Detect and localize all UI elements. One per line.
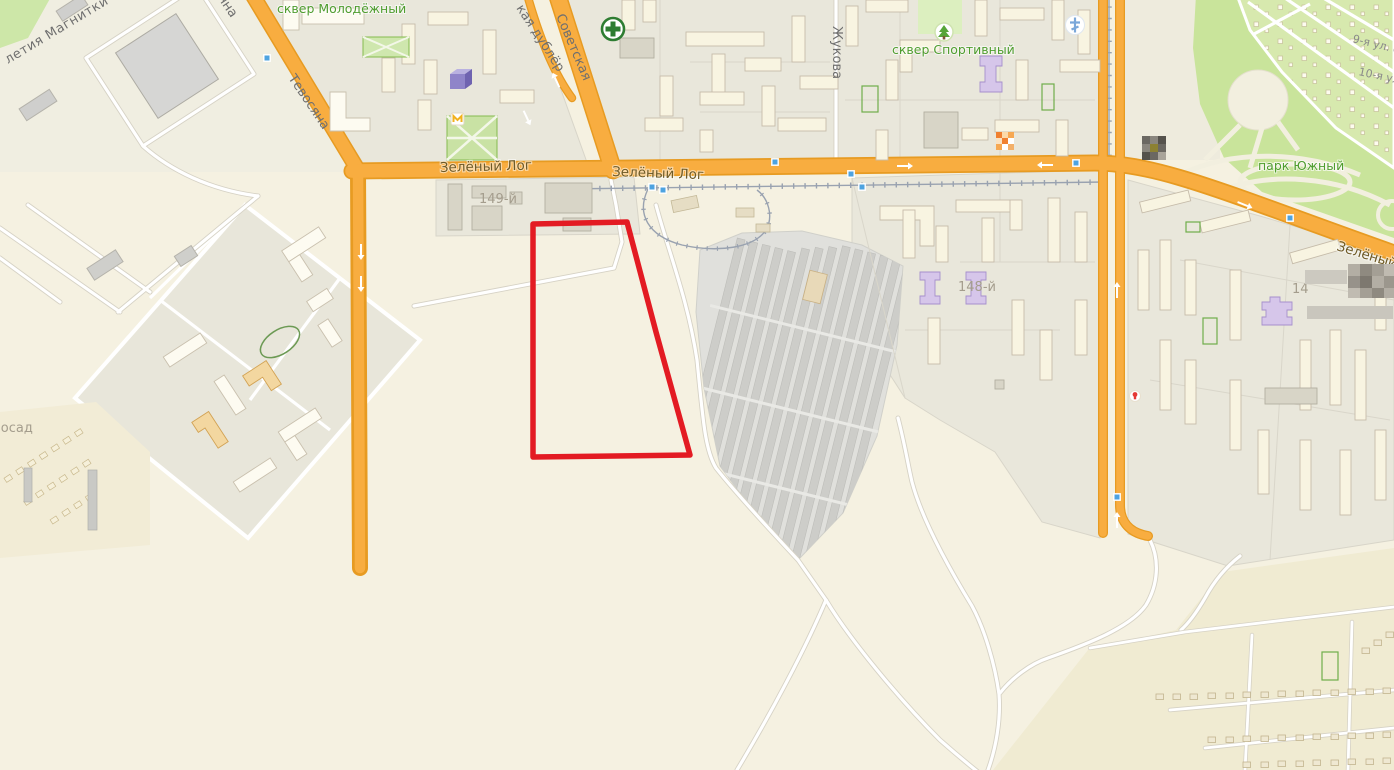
- shop-poi-red-icon[interactable]: [1130, 391, 1141, 402]
- place-label-skver-sportivny: сквер Спортивный: [892, 42, 1015, 57]
- transit-stop-marker: [264, 55, 270, 61]
- transit-stop-marker: [859, 184, 865, 190]
- road-label-zelyony-log-1: Зелёный Лог: [440, 158, 532, 176]
- district-label-149: 149-й: [479, 192, 517, 207]
- map-canvas[interactable]: летия Магнитки Тевосяна Тевосяна кая дуб…: [0, 0, 1394, 770]
- transit-stop-marker: [772, 159, 778, 165]
- censored-poi-icon-orange[interactable]: [996, 132, 1014, 150]
- church-icon[interactable]: [1066, 16, 1085, 35]
- transit-stop-marker: [848, 171, 854, 177]
- place-label-park-yuzhny: парк Южный: [1258, 158, 1344, 173]
- censored-poi-icon-dark[interactable]: [1142, 136, 1166, 160]
- street-label-zhukova: Жукова: [829, 26, 844, 79]
- purple-building-3d-icon[interactable]: [450, 69, 472, 89]
- transit-stop-marker: [660, 187, 666, 193]
- district-label-partial-14: 14: [1292, 282, 1309, 297]
- park-tree-icon[interactable]: [935, 23, 953, 41]
- road-label-zelyony-log-2: Зелёный Лог: [612, 164, 704, 183]
- small-shop-icon[interactable]: [451, 113, 464, 125]
- transit-stop-marker: [649, 184, 655, 190]
- transit-stop-marker: [1114, 494, 1120, 500]
- pharmacy-icon[interactable]: [602, 18, 624, 40]
- place-label-posad: Посад: [0, 421, 33, 436]
- place-label-skver-molodyozhny: сквер Молодёжный: [277, 1, 406, 16]
- transit-stop-marker: [1287, 215, 1293, 221]
- transit-stop-marker: [1073, 160, 1079, 166]
- district-label-148: 148-й: [958, 280, 996, 295]
